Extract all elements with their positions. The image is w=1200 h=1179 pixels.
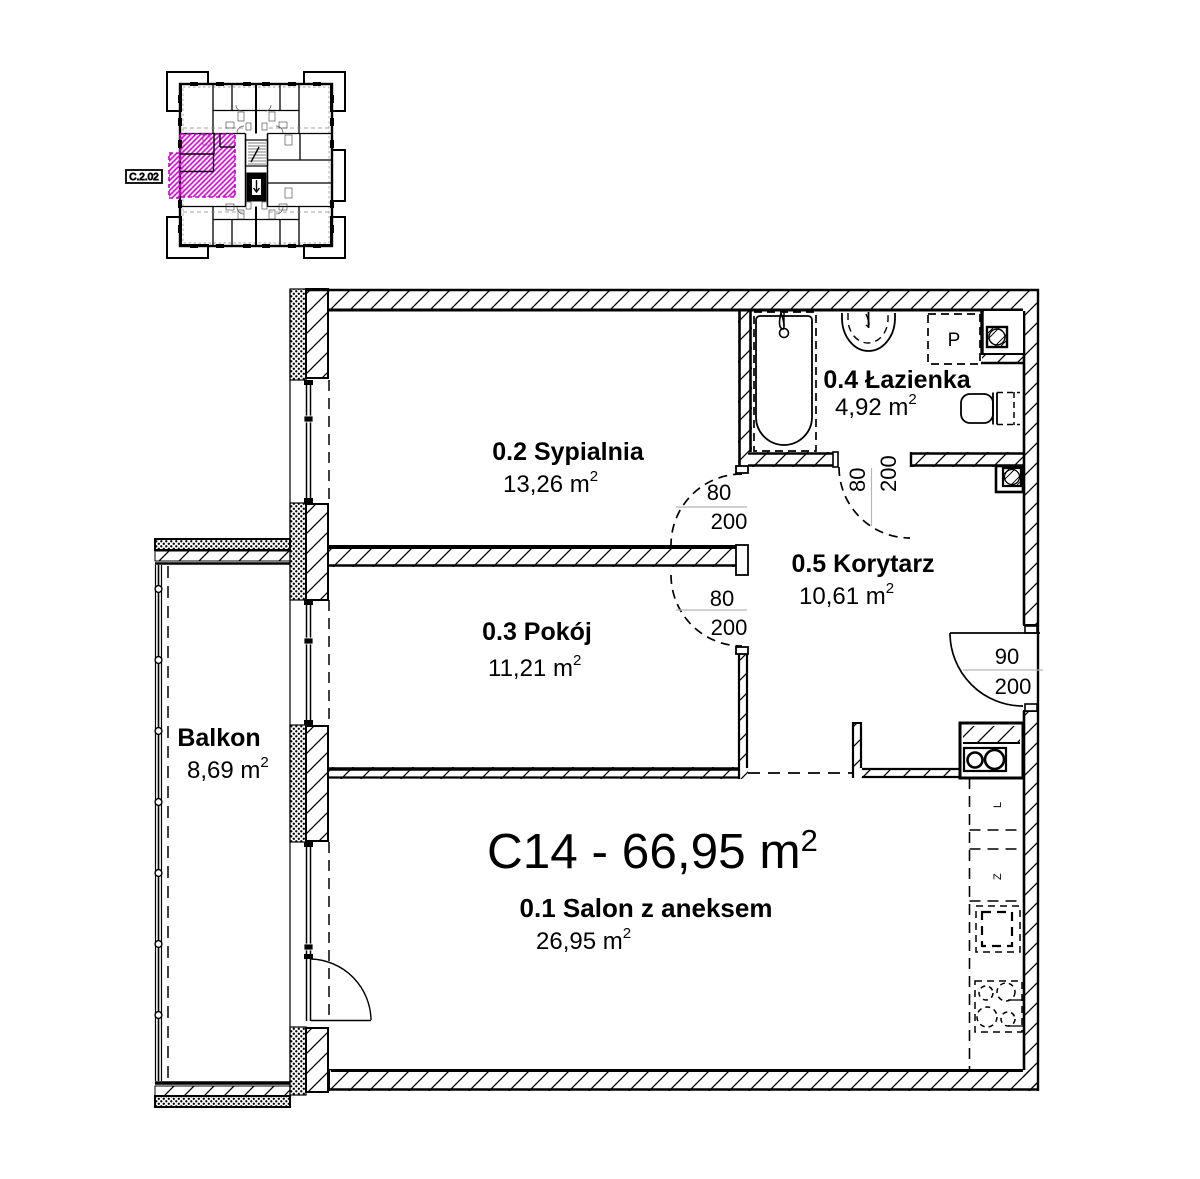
- svg-text:4,92 m2: 4,92 m2: [835, 391, 917, 421]
- svg-text:26,95 m2: 26,95 m2: [536, 925, 631, 955]
- svg-text:L: L: [992, 802, 1004, 808]
- svg-text:0.1 Salon z aneksem: 0.1 Salon z aneksem: [520, 893, 773, 923]
- svg-text:80: 80: [707, 480, 731, 505]
- svg-text:P: P: [948, 330, 961, 351]
- svg-text:11,21 m2: 11,21 m2: [488, 652, 581, 682]
- svg-text:200: 200: [711, 615, 748, 640]
- svg-text:0.4 Łazienka: 0.4 Łazienka: [823, 366, 971, 394]
- svg-text:0.5 Korytarz: 0.5 Korytarz: [791, 550, 934, 578]
- svg-text:0.3 Pokój: 0.3 Pokój: [482, 618, 592, 646]
- svg-text:90: 90: [995, 644, 1019, 669]
- svg-text:C14 - 66,95 m2: C14 - 66,95 m2: [487, 823, 818, 879]
- svg-text:13,26 m2: 13,26 m2: [503, 468, 598, 498]
- svg-text:200: 200: [995, 674, 1032, 699]
- svg-text:C.2.02: C.2.02: [129, 172, 159, 183]
- svg-text:80: 80: [845, 468, 870, 492]
- svg-text:200: 200: [711, 509, 748, 534]
- svg-text:0.2 Sypialnia: 0.2 Sypialnia: [492, 438, 645, 466]
- svg-text:Z: Z: [992, 873, 1004, 880]
- svg-text:80: 80: [710, 586, 734, 611]
- svg-text:200: 200: [876, 455, 901, 492]
- svg-text:10,61 m2: 10,61 m2: [799, 580, 894, 610]
- svg-text:8,69 m2: 8,69 m2: [187, 754, 269, 784]
- svg-text:Balkon: Balkon: [177, 724, 260, 752]
